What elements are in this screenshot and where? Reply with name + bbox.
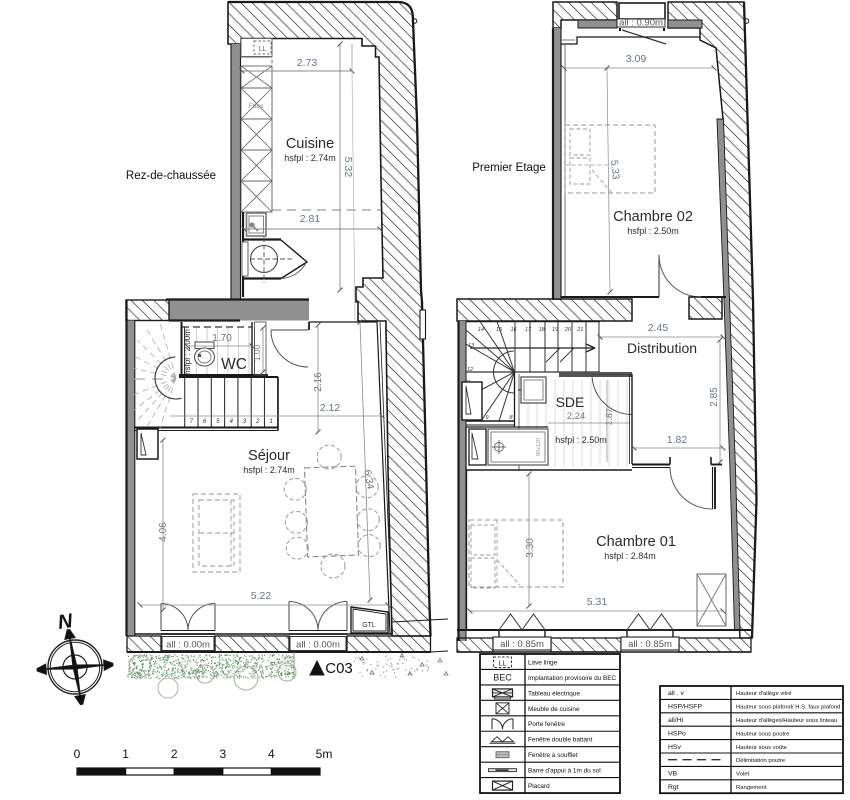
svg-text:Chambre 01: Chambre 01	[596, 534, 676, 550]
svg-text:Hauteur sous plafond/ H.S. fau: Hauteur sous plafond/ H.S. faux plafond	[736, 705, 840, 711]
svg-text:3.09: 3.09	[626, 53, 647, 65]
svg-text:GTL: GTL	[362, 622, 376, 629]
svg-text:18: 18	[539, 327, 546, 333]
svg-text:2.16: 2.16	[313, 372, 324, 392]
svg-text:2.73: 2.73	[297, 57, 318, 69]
svg-text:1: 1	[269, 419, 272, 425]
svg-text:all/Hi: all/Hi	[668, 717, 684, 724]
svg-text:Meuble de cuisine: Meuble de cuisine	[528, 706, 580, 713]
svg-text:Tableau électrique: Tableau électrique	[528, 690, 580, 697]
svg-text:Rgt: Rgt	[668, 784, 679, 791]
svg-text:Hauteur d'allège vitré: Hauteur d'allège vitré	[736, 691, 792, 697]
svg-text:1.00: 1.00	[252, 344, 262, 361]
svg-text:4: 4	[268, 747, 275, 761]
svg-text:1.87: 1.87	[604, 408, 615, 426]
svg-text:all : 0.00m: all : 0.00m	[296, 640, 340, 651]
svg-text:5.33: 5.33	[608, 160, 621, 181]
svg-text:HSP/HSFP: HSP/HSFP	[668, 704, 702, 711]
svg-text:all . v: all . v	[668, 690, 684, 697]
svg-text:hsfpl : 2.50m: hsfpl : 2.50m	[627, 226, 679, 236]
svg-text:1: 1	[122, 747, 129, 761]
svg-text:Fenêtre double battant: Fenêtre double battant	[528, 737, 593, 744]
svg-text:2.81: 2.81	[300, 213, 321, 225]
svg-text:Hauteur d'allèges/Hauteur sous: Hauteur d'allèges/Hauteur sous linteau	[736, 718, 837, 724]
svg-text:all : 0.85m: all : 0.85m	[500, 639, 544, 650]
svg-text:2.45: 2.45	[648, 322, 669, 334]
svg-text:2.85: 2.85	[709, 387, 720, 407]
svg-text:1.70: 1.70	[212, 333, 232, 344]
svg-text:hsfpl : 2.00m: hsfpl : 2.00m	[183, 329, 192, 375]
svg-text:HSv: HSv	[668, 744, 681, 751]
svg-text:1.82: 1.82	[667, 434, 688, 446]
svg-text:Porte fenêtre: Porte fenêtre	[528, 721, 565, 728]
svg-text:5m: 5m	[316, 747, 333, 761]
svg-text:2: 2	[255, 419, 260, 425]
svg-text:2.24: 2.24	[567, 411, 586, 422]
svg-text:Fbco: Fbco	[249, 103, 264, 110]
svg-text:hsfpl : 2.74m: hsfpl : 2.74m	[243, 465, 295, 475]
svg-text:3: 3	[219, 747, 226, 761]
svg-text:Distribution: Distribution	[627, 340, 697, 356]
svg-text:SDE: SDE	[556, 394, 585, 410]
svg-text:C03: C03	[325, 660, 353, 677]
svg-text:Hauteur sous poutre: Hauteur sous poutre	[736, 731, 790, 737]
svg-text:5.22: 5.22	[251, 590, 272, 602]
svg-text:Fenêtre à soufflet: Fenêtre à soufflet	[528, 752, 578, 759]
svg-text:BEC: BEC	[493, 672, 512, 682]
svg-text:WC: WC	[221, 356, 247, 373]
svg-text:20: 20	[564, 327, 572, 333]
svg-text:2.12: 2.12	[320, 402, 341, 414]
svg-text:5.32: 5.32	[342, 157, 354, 178]
svg-text:Barre d'appui à 1m du sol: Barre d'appui à 1m du sol	[528, 768, 601, 775]
svg-text:HSPo: HSPo	[668, 730, 686, 737]
svg-text:0: 0	[74, 747, 81, 761]
svg-text:Séjour: Séjour	[248, 448, 290, 464]
svg-text:Lave linge: Lave linge	[528, 659, 558, 666]
svg-text:LL: LL	[498, 658, 506, 667]
svg-text:all : 0.00m: all : 0.00m	[166, 640, 210, 651]
svg-text:Cuisine: Cuisine	[286, 136, 334, 152]
svg-text:Délimitation poutre: Délimitation poutre	[736, 758, 786, 764]
svg-text:Premier Etage: Premier Etage	[472, 162, 546, 174]
svg-text:Implantation provisoire du BEC: Implantation provisoire du BEC	[528, 675, 616, 682]
svg-text:Hauteur sous voûte: Hauteur sous voûte	[736, 745, 788, 751]
svg-text:2: 2	[171, 747, 178, 761]
svg-text:3.30: 3.30	[525, 538, 536, 558]
svg-text:all : 0.90m: all : 0.90m	[619, 18, 663, 29]
svg-text:21: 21	[576, 327, 583, 333]
svg-text:LL: LL	[259, 46, 267, 53]
svg-text:80x120: 80x120	[536, 438, 542, 456]
svg-text:5.31: 5.31	[587, 596, 608, 608]
svg-text:hsfpl : 2.74m: hsfpl : 2.74m	[284, 153, 336, 163]
svg-text:VB: VB	[668, 771, 678, 778]
svg-text:Rangement: Rangement	[736, 785, 767, 791]
svg-text:Rez-de-chaussée: Rez-de-chaussée	[126, 170, 216, 182]
svg-text:hsfpl : 2.50m: hsfpl : 2.50m	[555, 435, 607, 445]
svg-text:16: 16	[510, 327, 517, 333]
svg-text:Chambre 02: Chambre 02	[613, 209, 693, 225]
svg-text:hsfpl : 2.84m: hsfpl : 2.84m	[604, 551, 656, 561]
svg-text:Placard: Placard	[528, 783, 550, 790]
svg-text:all : 0.85m: all : 0.85m	[628, 639, 672, 650]
svg-text:9: 9	[485, 415, 488, 421]
svg-text:Volet: Volet	[736, 772, 749, 778]
svg-text:17: 17	[525, 327, 532, 333]
svg-text:14: 14	[478, 327, 484, 333]
svg-text:19: 19	[552, 327, 558, 333]
svg-text:4.06: 4.06	[158, 522, 169, 542]
